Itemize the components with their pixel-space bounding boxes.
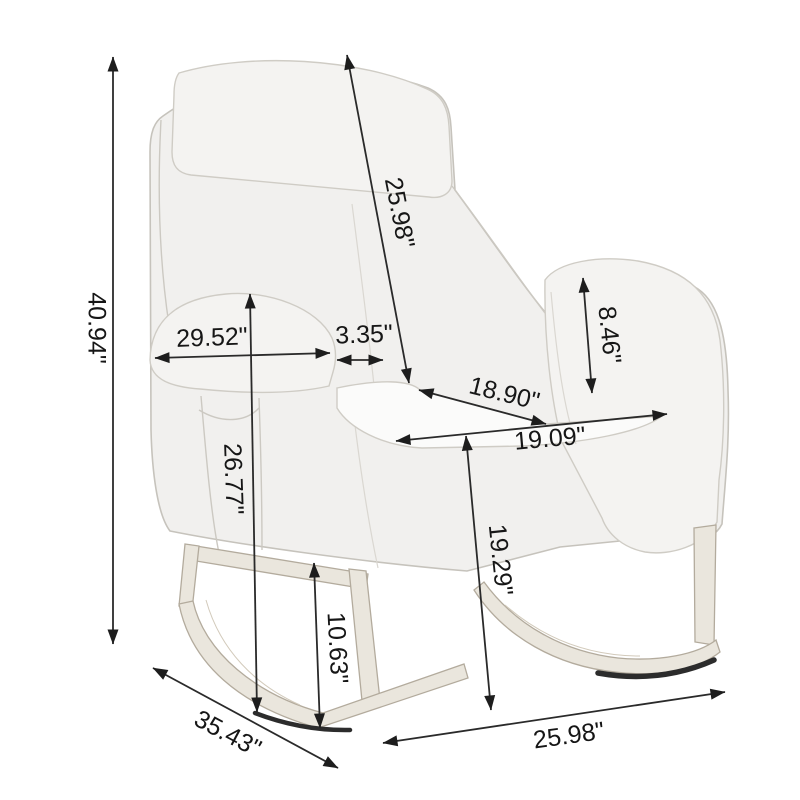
dimension-label: 8.46" xyxy=(592,305,626,365)
dimension-label: 26.77" xyxy=(218,443,248,515)
dimension-label: 40.94" xyxy=(82,292,110,363)
headrest-pillow xyxy=(172,61,452,198)
right-rocker-rear-post xyxy=(694,525,716,645)
dimension-label: 10.63" xyxy=(322,612,354,685)
left-rocker-front-post xyxy=(179,544,199,610)
dimension-line xyxy=(314,563,320,728)
dimension-label: 3.35" xyxy=(335,320,393,350)
dimension-base-height: 10.63" xyxy=(314,563,353,728)
dimension-overall-height: 40.94" xyxy=(82,57,113,644)
rocking-chair-dimension-diagram: 40.94" 25.98" 29.52" 3.35" 8.46" 18.90" … xyxy=(0,0,800,800)
dimension-label: 29.52" xyxy=(176,322,248,352)
right-rocker-runner xyxy=(474,582,720,674)
diagram-stage: 40.94" 25.98" 29.52" 3.35" 8.46" 18.90" … xyxy=(0,0,800,800)
dimension-label: 25.98" xyxy=(531,717,606,755)
dimension-overall-width: 25.98" xyxy=(383,692,725,754)
